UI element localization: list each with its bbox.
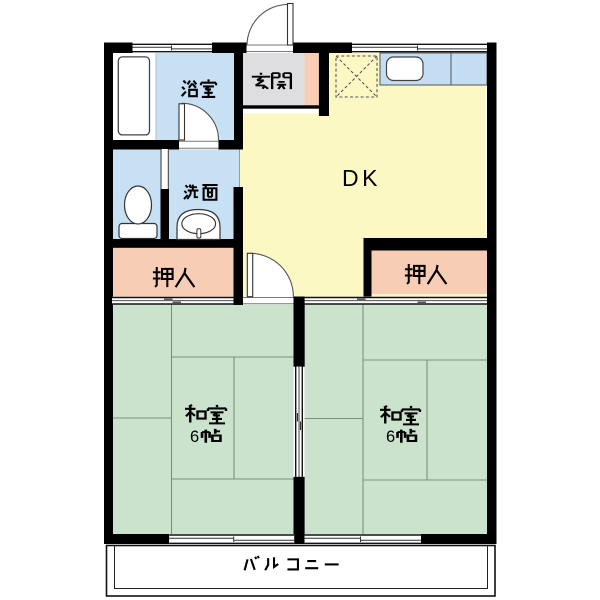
svg-text:6: 6 bbox=[190, 428, 199, 446]
svg-text:6: 6 bbox=[386, 428, 395, 446]
svg-text:DK: DK bbox=[342, 165, 381, 191]
